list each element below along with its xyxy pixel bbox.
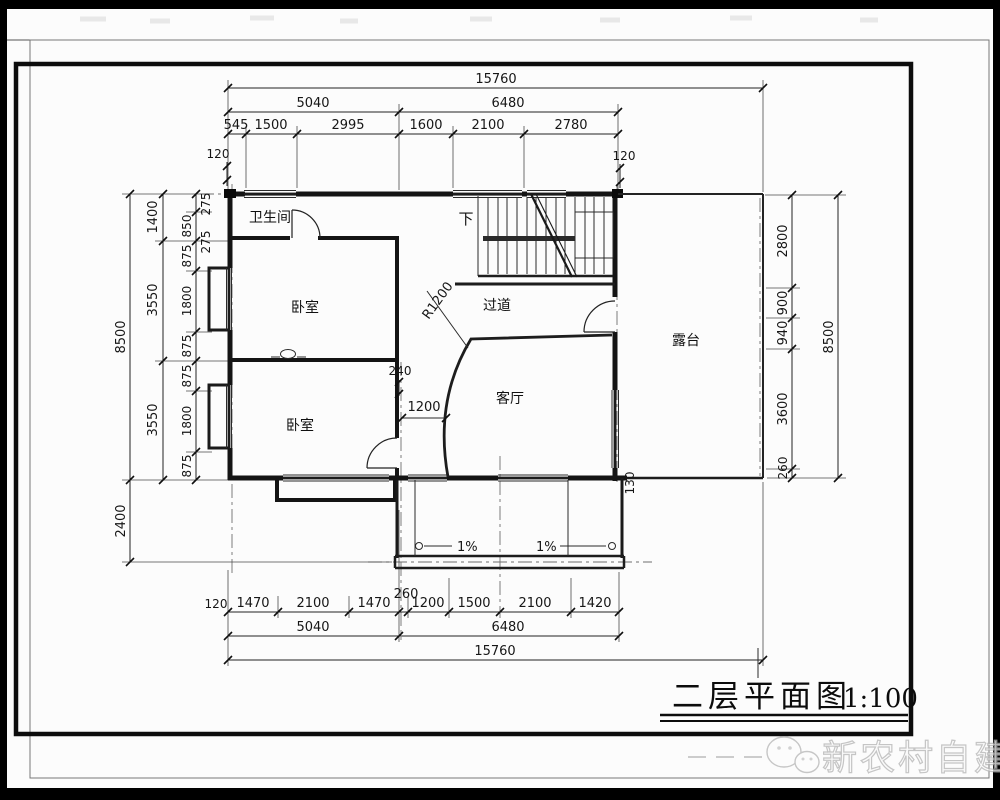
dim-left-inner: 850	[180, 215, 194, 238]
dim-left-inner: 875	[180, 365, 194, 388]
drawing-scale: 1:100	[843, 684, 918, 714]
dim-bottom-left-half: 5040	[296, 620, 329, 635]
dim-bottom-wall-left: 120	[205, 597, 228, 611]
drawing-title: 二层平面图	[672, 679, 852, 715]
dim-bottom-seg: 1470	[357, 596, 390, 611]
floor-plan-canvas: 15760 5040 6480 545 1500 2995 1600 2100 …	[0, 0, 1000, 800]
dim-right-inner: 900	[776, 291, 791, 316]
dim-left-inner: 1800	[180, 406, 194, 437]
dim-left-offset-275: 275	[199, 193, 213, 216]
dim-right-inner: 260	[776, 457, 790, 480]
dim-bottom-seg: 1420	[578, 596, 611, 611]
room-label-terrace: 露台	[672, 333, 700, 349]
dim-bottom-right-half: 6480	[491, 620, 524, 635]
room-label-bedroom-upper: 卧室	[291, 299, 319, 316]
dim-left-inner: 875	[180, 335, 194, 358]
room-label-bedroom-lower: 卧室	[286, 417, 314, 434]
dim-left-mid: 3550	[146, 283, 161, 316]
dim-bottom-seg: 1200	[411, 596, 444, 611]
dim-top-seg: 545	[224, 118, 249, 133]
watermark-text: 新农村自建房	[822, 739, 1000, 779]
dim-top-seg: 2780	[554, 118, 587, 133]
dim-left-total: 8500	[114, 320, 129, 353]
drawing-sheet: 15760 5040 6480 545 1500 2995 1600 2100 …	[0, 0, 1000, 800]
dim-top-seg: 2100	[471, 118, 504, 133]
slope-label-left: 1%	[457, 540, 478, 555]
dim-left-inner: 1800	[180, 286, 194, 317]
dim-top-wall-right: 120	[613, 149, 636, 163]
dim-left-balcony: 2400	[114, 504, 129, 537]
dim-left-mid: 3550	[146, 403, 161, 436]
dim-top-total: 15760	[475, 72, 516, 87]
dim-right-inner: 2800	[776, 224, 791, 257]
dim-bottom-seg: 1500	[457, 596, 490, 611]
dim-right-inner: 3600	[776, 392, 791, 425]
dim-top-seg: 1500	[254, 118, 287, 133]
dim-left-mid: 1400	[146, 200, 161, 233]
dim-right-inner: 940	[776, 321, 791, 346]
dim-top-right-half: 6480	[491, 96, 524, 111]
dim-top-seg: 2995	[331, 118, 364, 133]
gap-130-label: 130	[623, 472, 637, 495]
stair-handrail	[483, 236, 575, 241]
dim-left-inner: 875	[180, 455, 194, 478]
room-label-hallway: 过道	[483, 298, 511, 314]
wall-240-label: 240	[389, 364, 412, 378]
dim-bottom-seg: 2100	[518, 596, 551, 611]
room-label-living: 客厅	[496, 390, 524, 407]
dim-top-seg: 1600	[409, 118, 442, 133]
dim-bottom-seg: 1470	[236, 596, 269, 611]
opening-1200-label: 1200	[407, 400, 440, 415]
dim-top-left-half: 5040	[296, 96, 329, 111]
dim-bottom-total: 15760	[474, 644, 515, 659]
room-label-bathroom: 卫生间	[249, 210, 291, 226]
slope-label-right: 1%	[536, 540, 557, 555]
dim-right-total: 8500	[822, 320, 837, 353]
dim-bottom-seg: 2100	[296, 596, 329, 611]
dim-top-wall-left: 120	[207, 147, 230, 161]
dim-left-offset-275: 275	[199, 231, 213, 254]
dim-left-inner: 875	[180, 245, 194, 268]
stairs-down-label: 下	[458, 210, 473, 228]
